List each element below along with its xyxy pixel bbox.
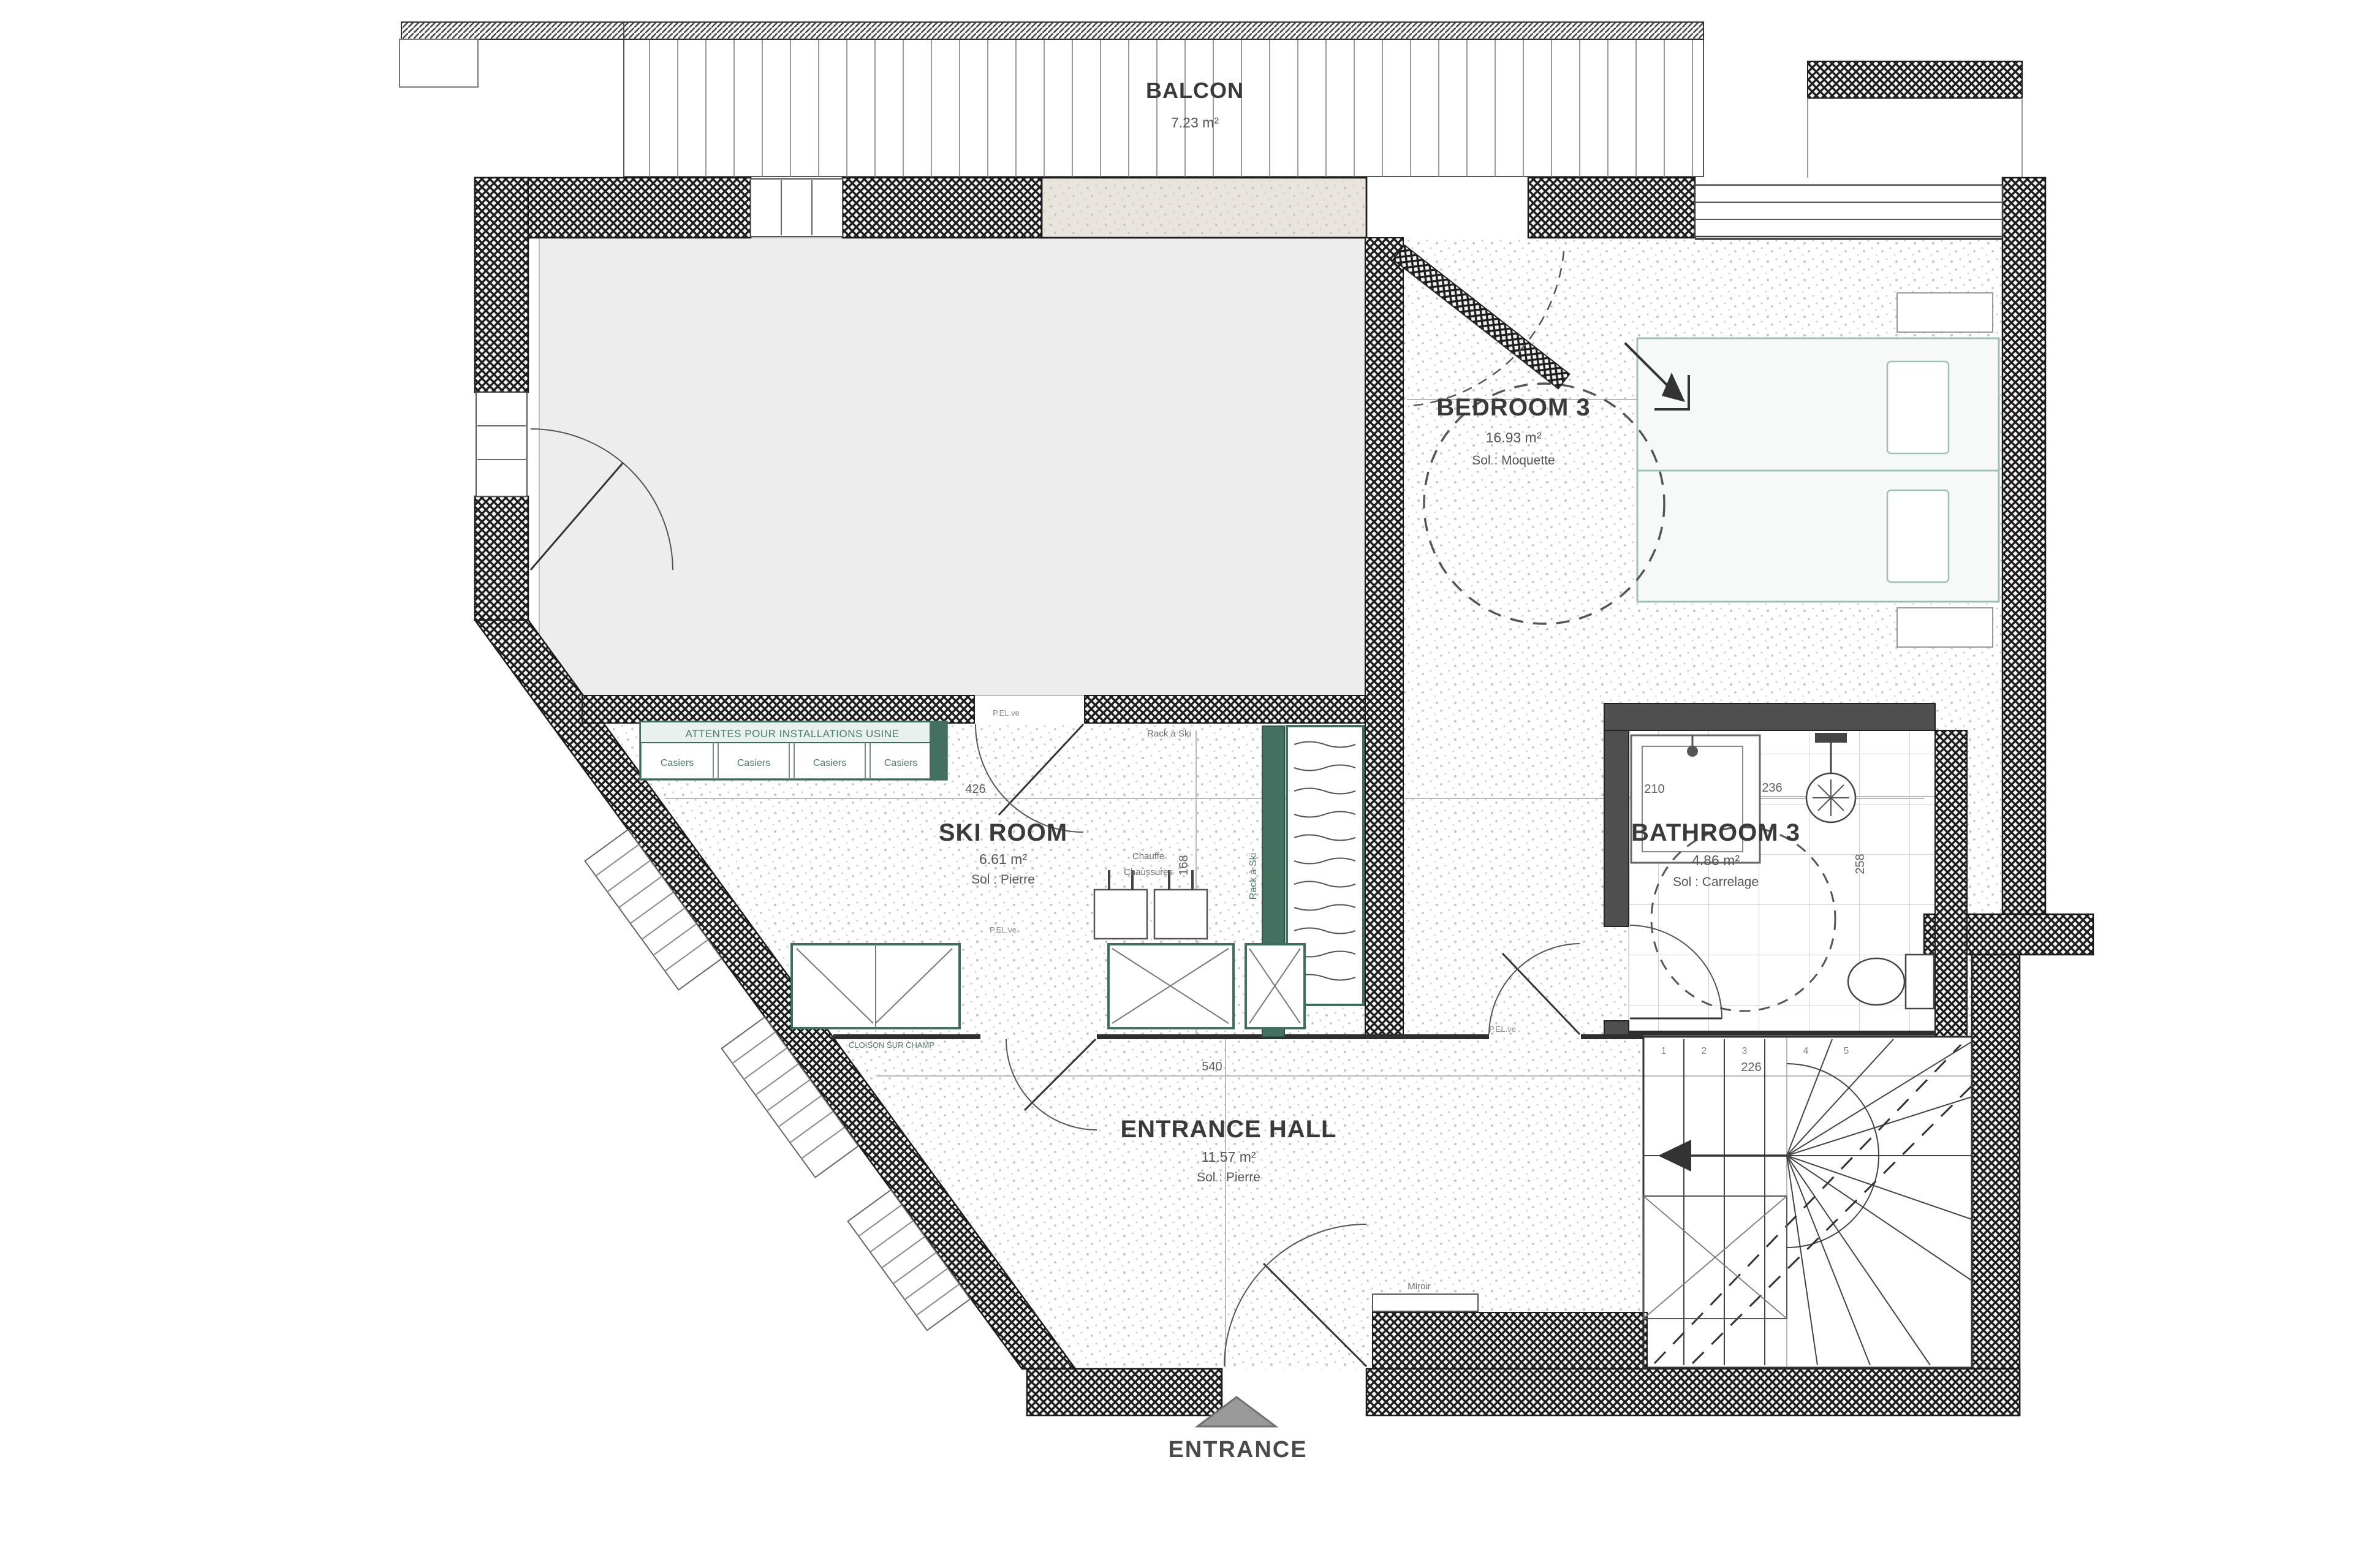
step-number: 3 — [1742, 1046, 1748, 1056]
dim-168: 168 — [1177, 855, 1191, 875]
pillow — [1887, 362, 1949, 453]
skiroom-label: SKI ROOM — [939, 819, 1067, 846]
entrance-hall-floor: Sol : Pierre — [1197, 1170, 1260, 1184]
dim-236: 236 — [1762, 781, 1782, 795]
bedroom3-area: 16.93 m² — [1486, 430, 1542, 445]
beds — [1637, 293, 1999, 647]
bedroom3-label: BEDROOM 3 — [1436, 394, 1590, 421]
entrance-hall-label: ENTRANCE HALL — [1121, 1116, 1337, 1143]
casiers-label: Casiers — [661, 758, 694, 768]
bathroom3-floor: Sol : Carrelage — [1673, 875, 1759, 889]
balcony-label: BALCON — [1146, 78, 1244, 103]
step-number: 1 — [1661, 1046, 1667, 1056]
skiroom-floor: Sol : Pierre — [971, 873, 1035, 887]
entrance-label: ENTRANCE — [1168, 1437, 1307, 1463]
step-number: 5 — [1844, 1046, 1849, 1056]
window-left-wall — [476, 392, 527, 496]
casiers-label: Casiers — [813, 758, 846, 768]
step-number: 2 — [1702, 1046, 1707, 1056]
balcony-area-label: 7.23 m² — [1171, 115, 1219, 131]
entrance-hall-area: 11.57 m² — [1201, 1149, 1256, 1165]
rack-a-ski-label: Rack à Ski — [1147, 729, 1191, 739]
dim-426: 426 — [965, 782, 985, 796]
bathroom3-label: BATHROOM 3 — [1631, 819, 1800, 846]
bedroom3-floor: Sol : Moquette — [1472, 453, 1555, 468]
pillow — [1887, 490, 1949, 582]
floor-plan-svg: BALCON 7.23 m² — [0, 0, 2353, 1568]
window-top-left — [751, 179, 843, 237]
pel-label: P.EL.ve — [993, 708, 1020, 718]
dim-226: 226 — [1741, 1061, 1761, 1074]
balcony-area: BALCON 7.23 m² — [400, 22, 1703, 176]
bathroom3-area: 4.86 m² — [1692, 852, 1740, 868]
dim-210: 210 — [1644, 782, 1664, 796]
pel-label: P.EL.ve — [990, 925, 1017, 934]
dim-258: 258 — [1854, 854, 1867, 874]
attentes-label: ATTENTES POUR INSTALLATIONS USINE — [686, 728, 900, 740]
dim-540: 540 — [1202, 1060, 1222, 1074]
chauffe-label-1: Chauffe — [1132, 851, 1164, 862]
cloison-label: CLOISON SUR CHAMP — [849, 1040, 934, 1050]
nightstand — [1897, 293, 1993, 332]
mirror — [1373, 1294, 1478, 1311]
skiroom-area: 6.61 m² — [979, 851, 1027, 867]
window-bedroom-top — [1695, 185, 2003, 239]
pel-label: P.EL.ve — [1489, 1025, 1516, 1034]
nightstand — [1897, 608, 1993, 647]
floor-plan-page: BALCON 7.23 m² — [0, 0, 2353, 1568]
chauffe-label-2: Chaussures — [1124, 867, 1173, 877]
casiers-label: Casiers — [737, 758, 770, 768]
miroir-label: Miroir — [1408, 1281, 1431, 1292]
step-number: 4 — [1803, 1046, 1809, 1056]
toilet — [1848, 955, 1934, 1009]
lockers-cabinet: ATTENTES POUR INSTALLATIONS USINE Casier… — [640, 722, 947, 779]
upper-right-wall — [1808, 61, 2022, 178]
masked-room — [539, 238, 1366, 695]
rack-a-ski-vertical-label: Rack à Ski — [1248, 853, 1259, 900]
casiers-label: Casiers — [884, 758, 917, 768]
